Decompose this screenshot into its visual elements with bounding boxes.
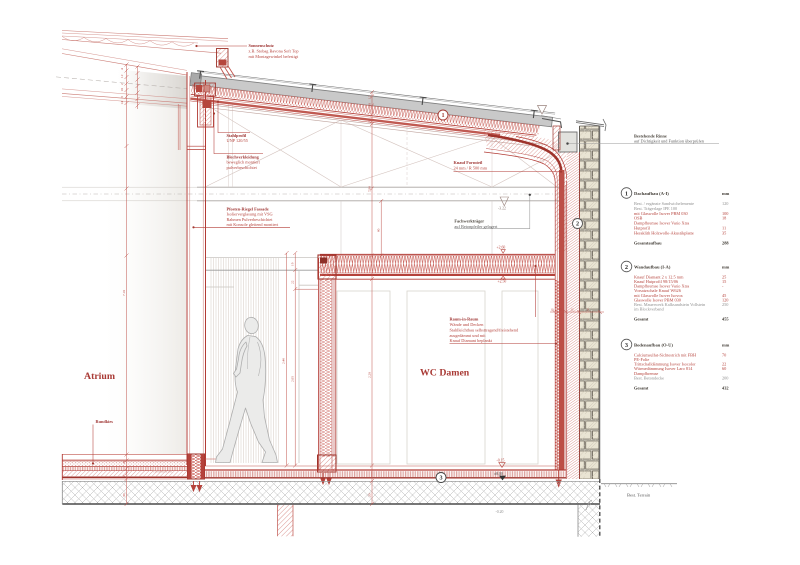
svg-text:7: 7 [122, 475, 126, 477]
svg-text:4: 4 [120, 68, 124, 70]
svg-text:z.B. Stobag Bavona Soft Top: z.B. Stobag Bavona Soft Top [249, 48, 299, 53]
svg-text:UNP 120/55: UNP 120/55 [227, 138, 248, 143]
svg-text:WC Damen: WC Damen [420, 368, 470, 379]
svg-text:21: 21 [587, 308, 591, 312]
svg-text:±0.00: ±0.00 [494, 472, 503, 476]
svg-text:19: 19 [291, 262, 295, 266]
svg-text:70: 70 [722, 352, 726, 357]
svg-text:Gesamt: Gesamt [634, 317, 649, 322]
svg-text:Rundkies: Rundkies [96, 419, 114, 424]
svg-text:Sonnenschutz: Sonnenschutz [249, 43, 274, 48]
svg-text:10: 10 [368, 103, 372, 107]
svg-text:35: 35 [722, 230, 726, 235]
svg-text:1: 1 [441, 112, 444, 119]
svg-text:3: 3 [120, 96, 124, 98]
svg-text:Heraklith Holzwolle-Akustikpla: Heraklith Holzwolle-Akustikplatte [634, 230, 694, 235]
svg-text:auf Betonpfeiler gelagert: auf Betonpfeiler gelagert [454, 224, 498, 229]
svg-text:2.20: 2.20 [368, 372, 372, 378]
svg-text:-0.15: -0.15 [497, 459, 505, 463]
svg-text:2: 2 [120, 83, 124, 85]
svg-text:Best. Terrain: Best. Terrain [627, 493, 651, 498]
svg-text:STB Rand im Gef.: STB Rand im Gef. [153, 471, 173, 474]
svg-text:Bodenaufbau (O-U): Bodenaufbau (O-U) [634, 342, 673, 347]
svg-text:432: 432 [722, 385, 729, 390]
svg-text:2: 2 [576, 221, 579, 228]
svg-text:-0.20: -0.20 [496, 510, 504, 514]
svg-text:3: 3 [625, 342, 628, 349]
svg-text:35: 35 [368, 119, 372, 123]
svg-text:12: 12 [571, 308, 575, 312]
svg-text:+2.50: +2.50 [498, 280, 507, 284]
svg-text:beweglich montiert: beweglich montiert [227, 160, 261, 165]
svg-text:Raum-in-Raum: Raum-in-Raum [450, 317, 479, 322]
svg-text:30: 30 [122, 493, 126, 497]
svg-text:2.46: 2.46 [282, 358, 286, 364]
svg-text:Knauf Formteil: Knauf Formteil [454, 160, 484, 165]
svg-text:10: 10 [551, 308, 555, 312]
svg-text:1: 1 [625, 190, 628, 197]
svg-text:60: 60 [722, 366, 726, 371]
svg-text:mm: mm [722, 264, 730, 269]
svg-text:mit Montagewinkel befestigt: mit Montagewinkel befestigt [249, 54, 299, 59]
svg-text:Wände und Decken: Wände und Decken [450, 322, 485, 327]
svg-text:Blechverkleidung: Blechverkleidung [227, 154, 260, 159]
svg-text:ausgedämmt und mit: ausgedämmt und mit [450, 333, 487, 338]
svg-text:455: 455 [722, 317, 729, 322]
svg-text:14: 14 [120, 101, 124, 105]
svg-text:10: 10 [120, 88, 124, 92]
svg-text:20: 20 [368, 493, 372, 497]
svg-text:45: 45 [559, 308, 563, 312]
svg-text:2: 2 [368, 112, 372, 114]
svg-text:mm: mm [722, 342, 730, 347]
svg-text:auf Dichtigkeit und Funktion ü: auf Dichtigkeit und Funktion überprüfen [634, 139, 705, 144]
svg-text:3: 3 [439, 475, 442, 482]
svg-text:12: 12 [120, 74, 124, 78]
svg-text:Stahlleichtbau selbsttragend/f: Stahlleichtbau selbsttragend/freistehend [450, 327, 519, 332]
svg-text:+2.60: +2.60 [497, 246, 506, 250]
svg-text:Isolierverglasung mit VSG: Isolierverglasung mit VSG [227, 212, 273, 217]
svg-text:7.96: 7.96 [368, 186, 372, 192]
svg-text:2: 2 [625, 264, 628, 271]
svg-text:120: 120 [722, 201, 728, 206]
svg-text:24 mm / R 500 mm: 24 mm / R 500 mm [454, 165, 488, 170]
svg-text:Fachwerkträger: Fachwerkträger [454, 219, 484, 224]
svg-text:22: 22 [291, 280, 295, 284]
svg-text:12: 12 [368, 95, 372, 99]
svg-text:29: 29 [122, 460, 126, 464]
svg-text:Pfosten-Riegel Fassade: Pfosten-Riegel Fassade [227, 206, 269, 211]
svg-text:Gesamt: Gesamt [634, 385, 649, 390]
svg-text:Knauf Diamant beplankt: Knauf Diamant beplankt [450, 338, 493, 343]
svg-text:Atrium: Atrium [84, 371, 115, 382]
svg-text:pulverbeschichtet: pulverbeschichtet [227, 165, 258, 170]
svg-text:250: 250 [722, 302, 728, 307]
svg-text:Best. Betondecke: Best. Betondecke [634, 375, 664, 380]
svg-text:60: 60 [377, 228, 381, 232]
svg-text:Dachaufbau (A-I): Dachaufbau (A-I) [634, 191, 669, 196]
svg-text:Wandaufbau (I-A): Wandaufbau (I-A) [634, 264, 671, 269]
svg-text:im Blockverband: im Blockverband [634, 307, 665, 312]
svg-text:-3.22: -3.22 [498, 207, 506, 211]
svg-text:2.05: 2.05 [291, 376, 295, 382]
svg-text:mit Konsole gleitend montiert: mit Konsole gleitend montiert [227, 222, 279, 227]
svg-text:Gesamtaufbau: Gesamtaufbau [634, 240, 662, 245]
svg-text:288: 288 [722, 240, 729, 245]
svg-text:7.10: 7.10 [122, 290, 126, 296]
svg-text:18: 18 [722, 216, 726, 221]
svg-text:mm: mm [722, 191, 730, 196]
svg-text:200: 200 [722, 375, 728, 380]
svg-text:Rahmen Pulverbeschichtet: Rahmen Pulverbeschichtet [227, 217, 274, 222]
